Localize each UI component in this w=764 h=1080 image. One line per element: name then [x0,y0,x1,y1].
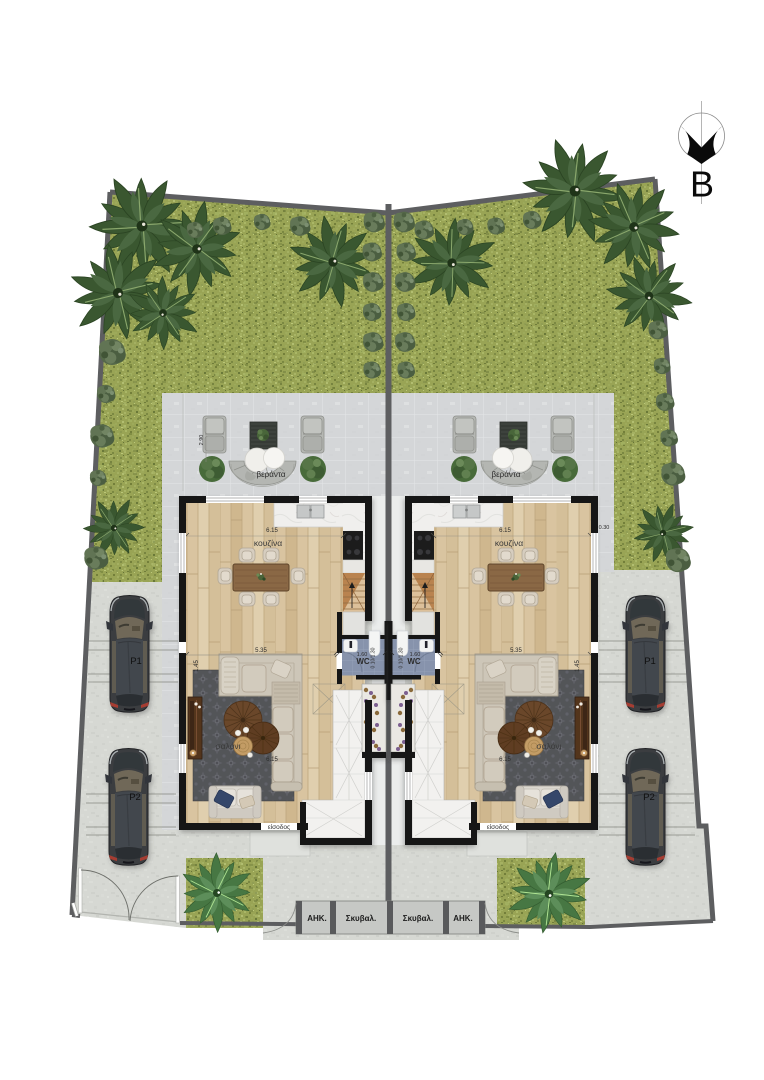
svg-text:P1: P1 [130,656,142,667]
svg-text:2.90: 2.90 [199,435,205,446]
svg-text:B: B [690,164,714,205]
svg-text:5.35: 5.35 [255,648,267,654]
svg-text:ΑΗΚ.: ΑΗΚ. [307,914,327,923]
svg-text:P2: P2 [129,792,141,803]
svg-text:6.15: 6.15 [266,757,278,763]
svg-text:0.30: 0.30 [599,525,610,531]
svg-text:1.45: 1.45 [194,660,200,672]
svg-text:0.10/1.30: 0.10/1.30 [399,647,405,668]
svg-text:βεράντα: βεράντα [491,470,520,479]
svg-text:ΑΗΚ.: ΑΗΚ. [453,914,473,923]
svg-text:WC: WC [407,657,421,666]
svg-text:0.10/1.30: 0.10/1.30 [371,647,377,668]
svg-text:Σκυβαλ.: Σκυβαλ. [346,914,376,923]
svg-text:P2: P2 [643,792,655,803]
svg-text:βεράντα: βεράντα [256,470,285,479]
svg-text:σαλόνι: σαλόνι [215,741,240,751]
svg-text:1.45: 1.45 [575,660,581,672]
svg-text:κουζίνα: κουζίνα [254,538,282,548]
svg-text:5.35: 5.35 [510,648,522,654]
svg-text:Σκυβαλ.: Σκυβαλ. [403,914,433,923]
svg-text:6.15: 6.15 [499,528,511,534]
svg-text:κουζίνα: κουζίνα [495,538,523,548]
svg-text:σαλόνι: σαλόνι [536,741,561,751]
svg-text:WC: WC [356,657,370,666]
svg-text:είσοδος: είσοδος [268,823,290,831]
svg-text:6.15: 6.15 [266,528,278,534]
svg-text:είσοδος: είσοδος [487,823,509,831]
svg-text:P1: P1 [644,656,656,667]
svg-text:6.15: 6.15 [499,757,511,763]
